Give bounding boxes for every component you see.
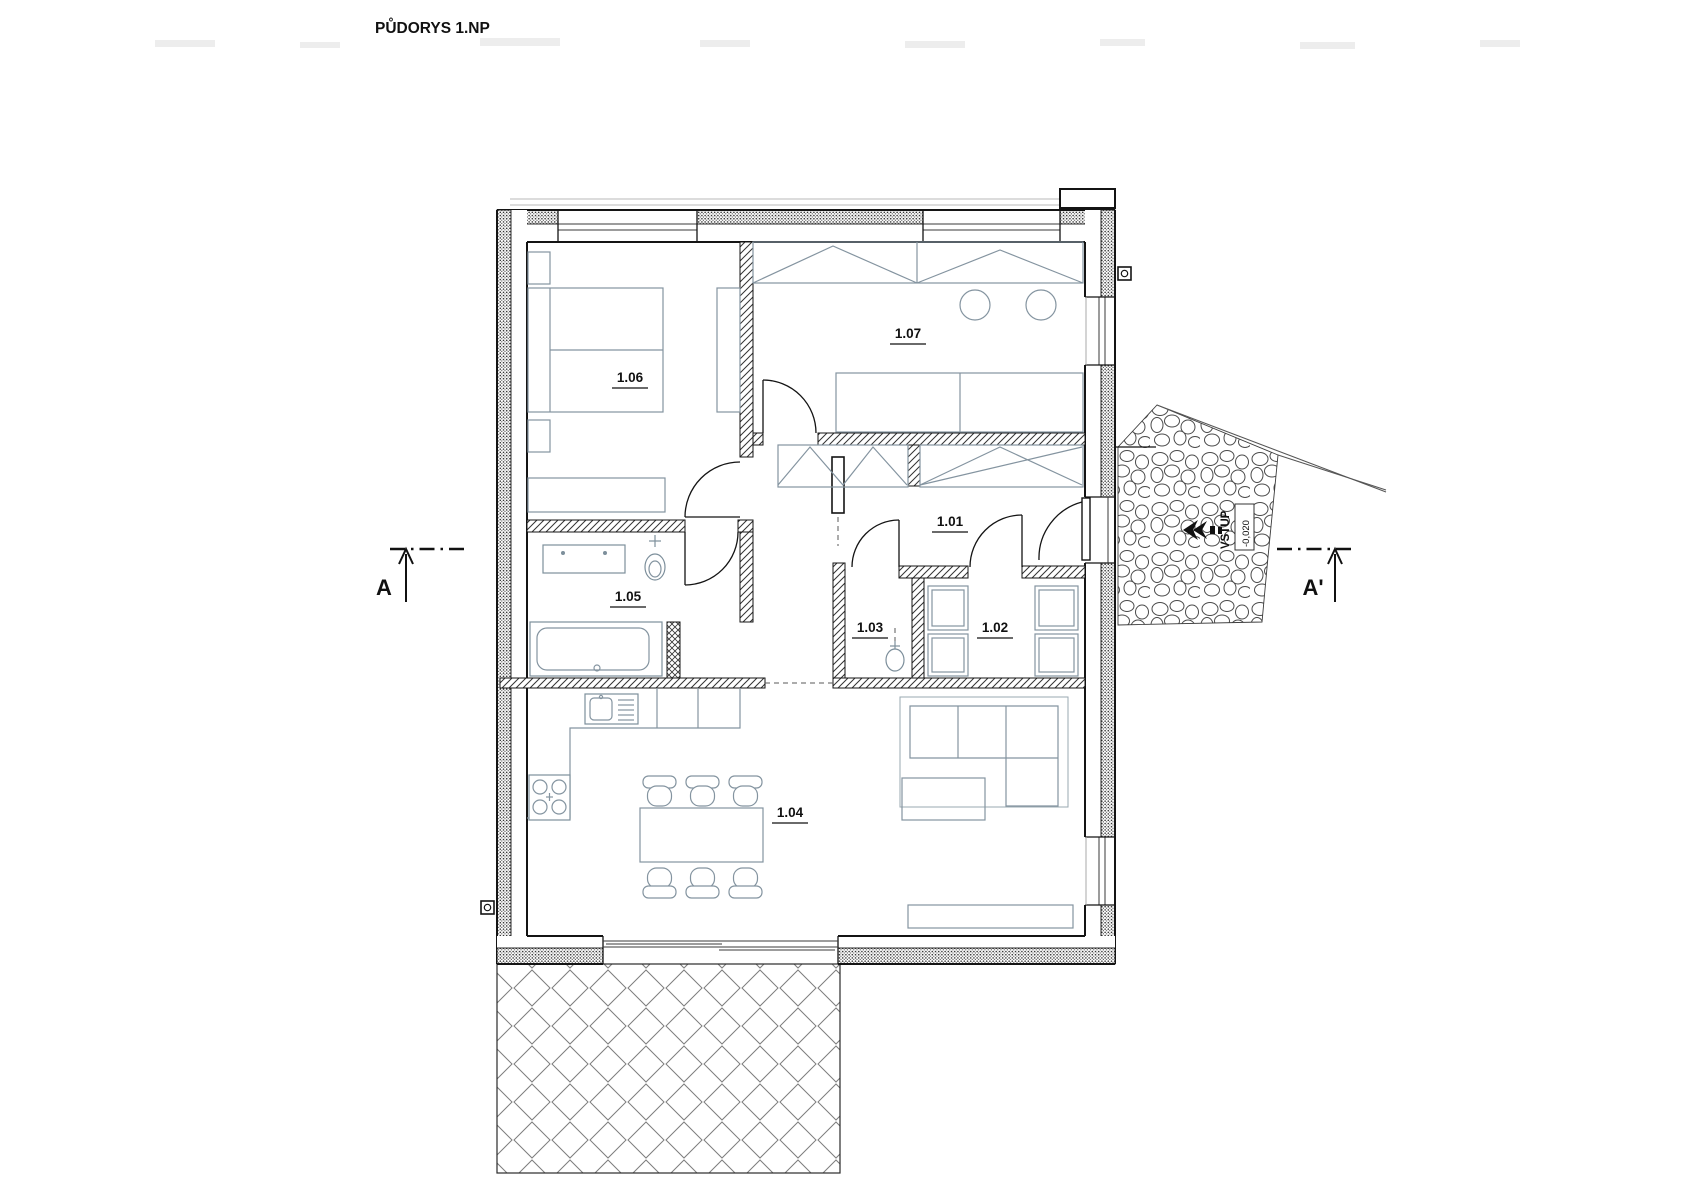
vanity-basin	[543, 545, 625, 573]
dining-table	[640, 808, 763, 862]
kitchen-sink	[585, 694, 638, 724]
entrance-level: -0,020	[1241, 520, 1252, 547]
coffee-table	[902, 778, 985, 820]
scan-artifacts	[155, 38, 1520, 49]
room-label-107: 1.07	[895, 326, 921, 341]
nightstand	[528, 420, 550, 452]
nightstand	[528, 252, 550, 284]
tv-bench	[908, 905, 1073, 928]
entrance-label: VSTUP	[1220, 510, 1232, 549]
dresser	[528, 478, 665, 512]
section-letter-a-prime: A'	[1302, 575, 1323, 600]
cooktop	[529, 775, 570, 820]
fixtures-bathroom-105	[530, 535, 665, 676]
corner-sofa	[910, 706, 1058, 806]
door-bedroom-107	[763, 380, 816, 433]
floor-plan-sheet: PŮDORYS 1.NP	[0, 0, 1697, 1200]
section-letter-a: A	[376, 575, 392, 600]
stool	[1026, 290, 1056, 320]
room-label-101: 1.01	[937, 514, 964, 529]
furniture-hallway-closets	[778, 445, 1083, 487]
door-bathroom-105	[685, 532, 738, 585]
door-entrance	[1039, 498, 1090, 560]
downspout-icon	[481, 901, 494, 914]
room-label-104: 1.04	[777, 805, 804, 820]
door-bedroom-106	[685, 462, 740, 517]
built-in-wardrobe	[753, 242, 1083, 283]
bathtub	[530, 622, 662, 676]
room-label-106: 1.06	[617, 370, 644, 385]
furniture-living	[900, 697, 1073, 928]
downspout-icon	[1118, 267, 1131, 280]
drawing-title: PŮDORYS 1.NP	[375, 18, 490, 37]
furniture-dining	[640, 776, 763, 898]
terrace-sliding-door	[603, 936, 838, 964]
wardrobe-cabinet	[717, 288, 740, 412]
section-marker-left: A	[376, 549, 466, 602]
room-label-105: 1.05	[615, 589, 642, 604]
floor-plan-drawing: PŮDORYS 1.NP	[0, 0, 1697, 1200]
door-wc-103	[852, 520, 899, 567]
door-utility-102	[970, 515, 1022, 567]
stool	[960, 290, 990, 320]
section-marker-right: A'	[1277, 549, 1353, 602]
toilet	[645, 535, 665, 580]
terrace	[497, 964, 840, 1173]
room-label-103: 1.03	[857, 620, 884, 635]
cased-opening	[832, 457, 844, 513]
toilet-103	[886, 628, 904, 671]
chimney	[1060, 189, 1115, 208]
roof-overhang-lines	[510, 199, 1060, 205]
room-label-102: 1.02	[982, 620, 1008, 635]
rug	[900, 697, 1068, 807]
